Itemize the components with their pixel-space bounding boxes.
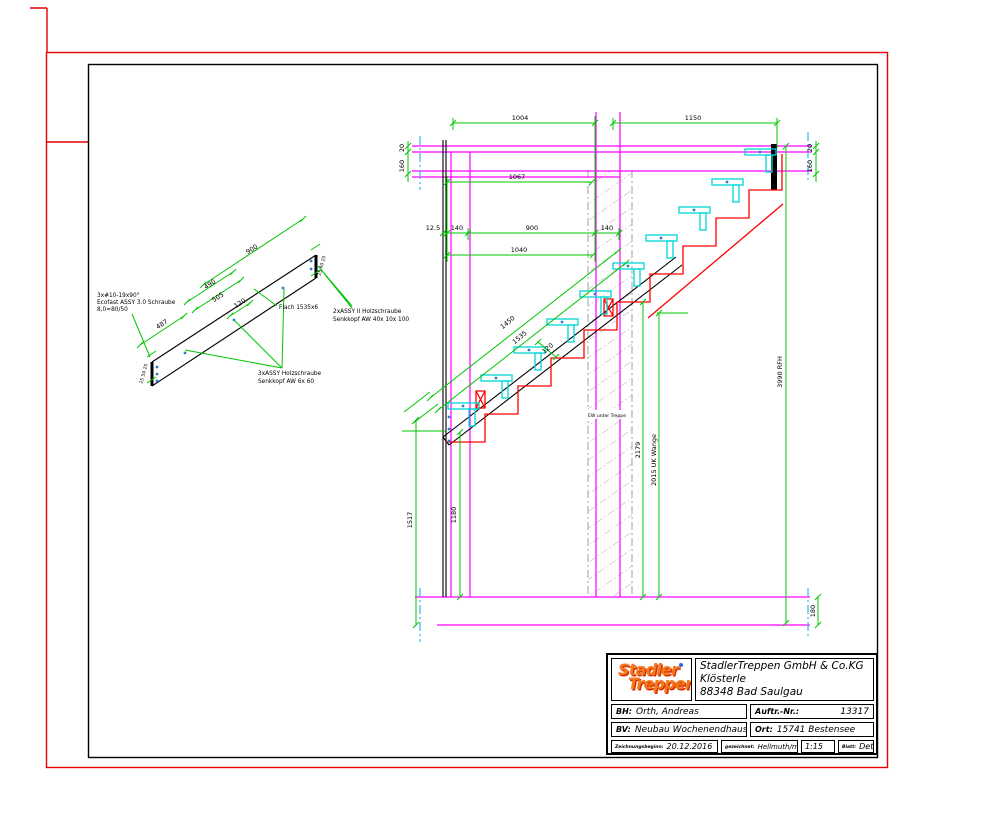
company-name: StadlerTreppen GmbH & Co.KG: [700, 660, 869, 673]
dim-slab-bottom: 180: [809, 605, 817, 617]
location-value: 15741 Bestensee: [777, 725, 855, 735]
dim-stringer-1450: 1450: [499, 314, 517, 331]
sheet-cell: Blatt: Detail: [838, 740, 874, 753]
dim-offset-120: 120: [540, 341, 555, 355]
section-marker-bottom: [476, 391, 485, 408]
dim-clear: 900: [526, 224, 538, 232]
label-screws-right-2: Senkkopf AW 40x 10x 100: [333, 317, 409, 323]
drawn-by-cell: gezeichnet: Hellmuth/ml: [721, 740, 798, 753]
drawing-sheet: 1004 1150 1067 12.5 140 900 140 1040 20 …: [0, 0, 994, 820]
detail-dim-900: 900: [245, 243, 260, 256]
detail-screw-dots: [156, 260, 313, 383]
sheet-label: Blatt:: [842, 745, 856, 751]
project-value: Neubau Wochenendhaus: [635, 725, 747, 735]
dim-post-left: 140: [451, 224, 463, 232]
drawing-start-label: Zeichnungsbeginn:: [615, 745, 663, 751]
label-flat-bar: Flach 1535x6: [279, 305, 318, 311]
project-cell: BV: Neubau Wochenendhaus: [611, 722, 747, 737]
dim-opening: 1067: [509, 173, 526, 181]
label-screws-bottom-2: Senkkopf AW 6x 60: [258, 379, 314, 385]
location-cell: Ort: 15741 Bestensee: [750, 722, 874, 737]
dim-uk-wange: 2015 UK Wange: [650, 434, 658, 486]
title-block: Stadler Treppen StadlerTreppen GmbH & Co…: [606, 653, 878, 755]
order-number-cell: Auftr.-Nr.: 13317: [750, 704, 874, 719]
order-number-label: Auftr.-Nr.:: [755, 707, 799, 716]
detail-dim-505: 505: [211, 291, 226, 304]
builder-label: BH:: [616, 707, 632, 716]
detail-dim-490: 490: [203, 278, 218, 291]
scale-cell: M 1:15: [801, 740, 835, 753]
dim-total: 1040: [511, 246, 528, 254]
label-screws-right-1: 2xASSY II Holzschraube: [333, 309, 402, 315]
label-screws-bottom-1: 3xASSY Holzschraube: [258, 371, 322, 377]
stringer-bar: [443, 257, 682, 445]
dim-board: 12.5: [426, 224, 440, 232]
drawn-by-label: gezeichnet:: [725, 745, 755, 751]
label-screws-left-2: Ecofast ASSY 3.0 Schraube: [97, 300, 176, 306]
drawing-start-cell: Zeichnungsbeginn: 20.12.2016: [611, 740, 718, 753]
sheet-value: Detail: [859, 742, 874, 751]
dim-slab-top-left: 20: [398, 144, 406, 152]
detail-texts: 900 490 505 120 487 25 50 25 25 40 25 3x…: [97, 243, 409, 385]
detail-dim-120: 120: [233, 297, 248, 310]
label-screws-left-1: 3x#10-19x90°: [97, 293, 140, 299]
builder-value: Orth, Andreas: [636, 707, 699, 717]
company-street: Klösterle: [700, 673, 869, 686]
drawing-start-value: 20.12.2016: [666, 742, 712, 751]
logo-dot-icon: [679, 663, 683, 667]
dim-slab-top-right: 20: [806, 144, 814, 152]
stringer-detail: 900 490 505 120 487 25 50 25 25 40 25 3x…: [97, 216, 409, 386]
detail-dim-end-right: 25 40 25: [316, 255, 327, 276]
drawn-by-value: Hellmuth/ml: [758, 743, 798, 751]
company-logo: Stadler Treppen: [611, 658, 692, 701]
dim-slab-left: 160: [398, 160, 406, 172]
builder-cell: BH: Orth, Andreas: [611, 704, 747, 719]
detail-dim-end-left: 25 50 25: [138, 363, 149, 384]
dim-storey-height: 3990 RFH: [776, 356, 784, 388]
location-label: Ort:: [755, 725, 773, 734]
dim-height-1180: 1180: [450, 507, 458, 524]
detail-dim-487: 487: [155, 318, 170, 331]
order-number-value: 13317: [840, 707, 869, 717]
dim-slab-right: 160: [806, 160, 814, 172]
company-city: 88348 Bad Saulgau: [700, 686, 869, 699]
dim-top-span-right: 1150: [685, 114, 702, 122]
logo-line-2: Treppen: [628, 677, 691, 691]
project-label: BV:: [616, 725, 631, 734]
label-screws-left-3: 8,0=80/50: [97, 307, 128, 313]
scale-value: M 1:15: [805, 740, 831, 751]
stair-section: 1004 1150 1067 12.5 140 900 140 1040 20 …: [398, 112, 821, 642]
dim-stringer-1535: 1535: [511, 329, 529, 346]
company-address: StadlerTreppen GmbH & Co.KG Klösterle 88…: [695, 658, 874, 701]
dim-wall: 140: [601, 224, 613, 232]
dim-height-2179: 2179: [634, 442, 642, 459]
dim-height-1517: 1517: [406, 512, 414, 529]
dim-top-span-left: 1004: [512, 114, 529, 122]
wall-label: EW unter Treppe: [588, 413, 626, 419]
